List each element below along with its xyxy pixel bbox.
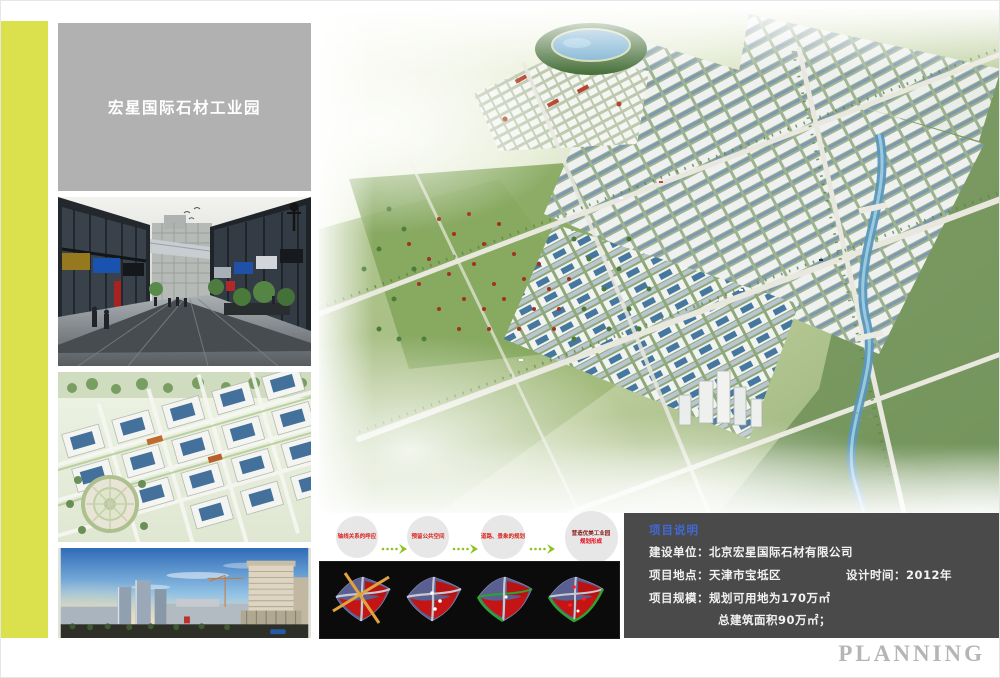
title-panel: 宏星国际石材工业园 [58,23,311,191]
info-row-design-time: 设计时间：2012年 [846,567,952,583]
location-label: 项目地点： [649,568,709,582]
aerial-park-image [58,372,311,542]
design-time-label: 设计时间： [846,568,906,582]
concept-diagram-box [319,561,620,639]
flow-step-1-label: 轴线关系的呼应 [338,534,377,541]
presentation-board: 宏星国际石材工业园 [0,0,1000,678]
location-value: 天津市宝坻区 [709,568,781,582]
flow-arrow-icon [529,543,556,555]
concept-diagram-2-nodes [402,571,466,629]
concept-diagram-4-plan [544,571,608,629]
builder-value: 北京宏星国际石材有限公司 [709,545,853,559]
accent-stripe [1,21,48,638]
flow-step-4: 营造优美工业园 规划形成 [565,511,618,564]
skyline-thumbnail [58,548,311,638]
aerial-park-thumbnail [58,372,311,542]
info-row-floor-area: 总建筑面积90万㎡； [718,612,831,628]
concept-diagram-3-greenways [473,571,537,629]
builder-label: 建设单位： [649,545,709,559]
flow-step-3: 道路、景象的规划 [481,515,525,559]
info-row-builder: 建设单位：北京宏星国际石材有限公司 [649,544,853,560]
flow-arrow-icon [452,543,479,555]
flow-step-1: 轴线关系的呼应 [336,516,378,558]
concept-diagram-1-axes [331,571,395,629]
planning-footer-label: PLANNING [838,641,985,667]
flow-step-3-label: 道路、景象的规划 [481,534,525,541]
scale-label: 项目规模： [649,591,709,605]
flow-step-2: 预留公共空间 [407,516,449,558]
flow-step-2-label: 预留公共空间 [411,534,444,541]
design-time-value: 2012年 [906,568,952,582]
floor-area-value: 总建筑面积90万㎡； [718,613,831,627]
flow-step-4-label: 营造优美工业园 [572,530,611,537]
project-info-heading: 项目说明 [649,522,699,538]
skyline-image [58,548,311,638]
page-title: 宏星国际石材工业园 [108,96,261,118]
info-row-scale: 项目规模：规划可用地为170万㎡ [649,590,831,606]
street-view-image [58,197,311,366]
project-info-panel: 项目说明 建设单位：北京宏星国际石材有限公司 项目地点：天津市宝坻区 设计时间：… [624,513,1000,638]
flow-arrow-icon [381,543,408,555]
flow-step-4-sublabel: 规划形成 [580,538,602,545]
masterplan-image [319,9,1000,513]
concept-flow: 轴线关系的呼应 预留公共空间 道路、景象的规划 营造优美工业园 规划形成 [319,513,621,561]
street-view-thumbnail [58,197,311,366]
scale-value: 规划可用地为170万㎡ [709,591,831,605]
masterplan-rendering [319,9,1000,513]
info-row-location: 项目地点：天津市宝坻区 [649,567,781,583]
